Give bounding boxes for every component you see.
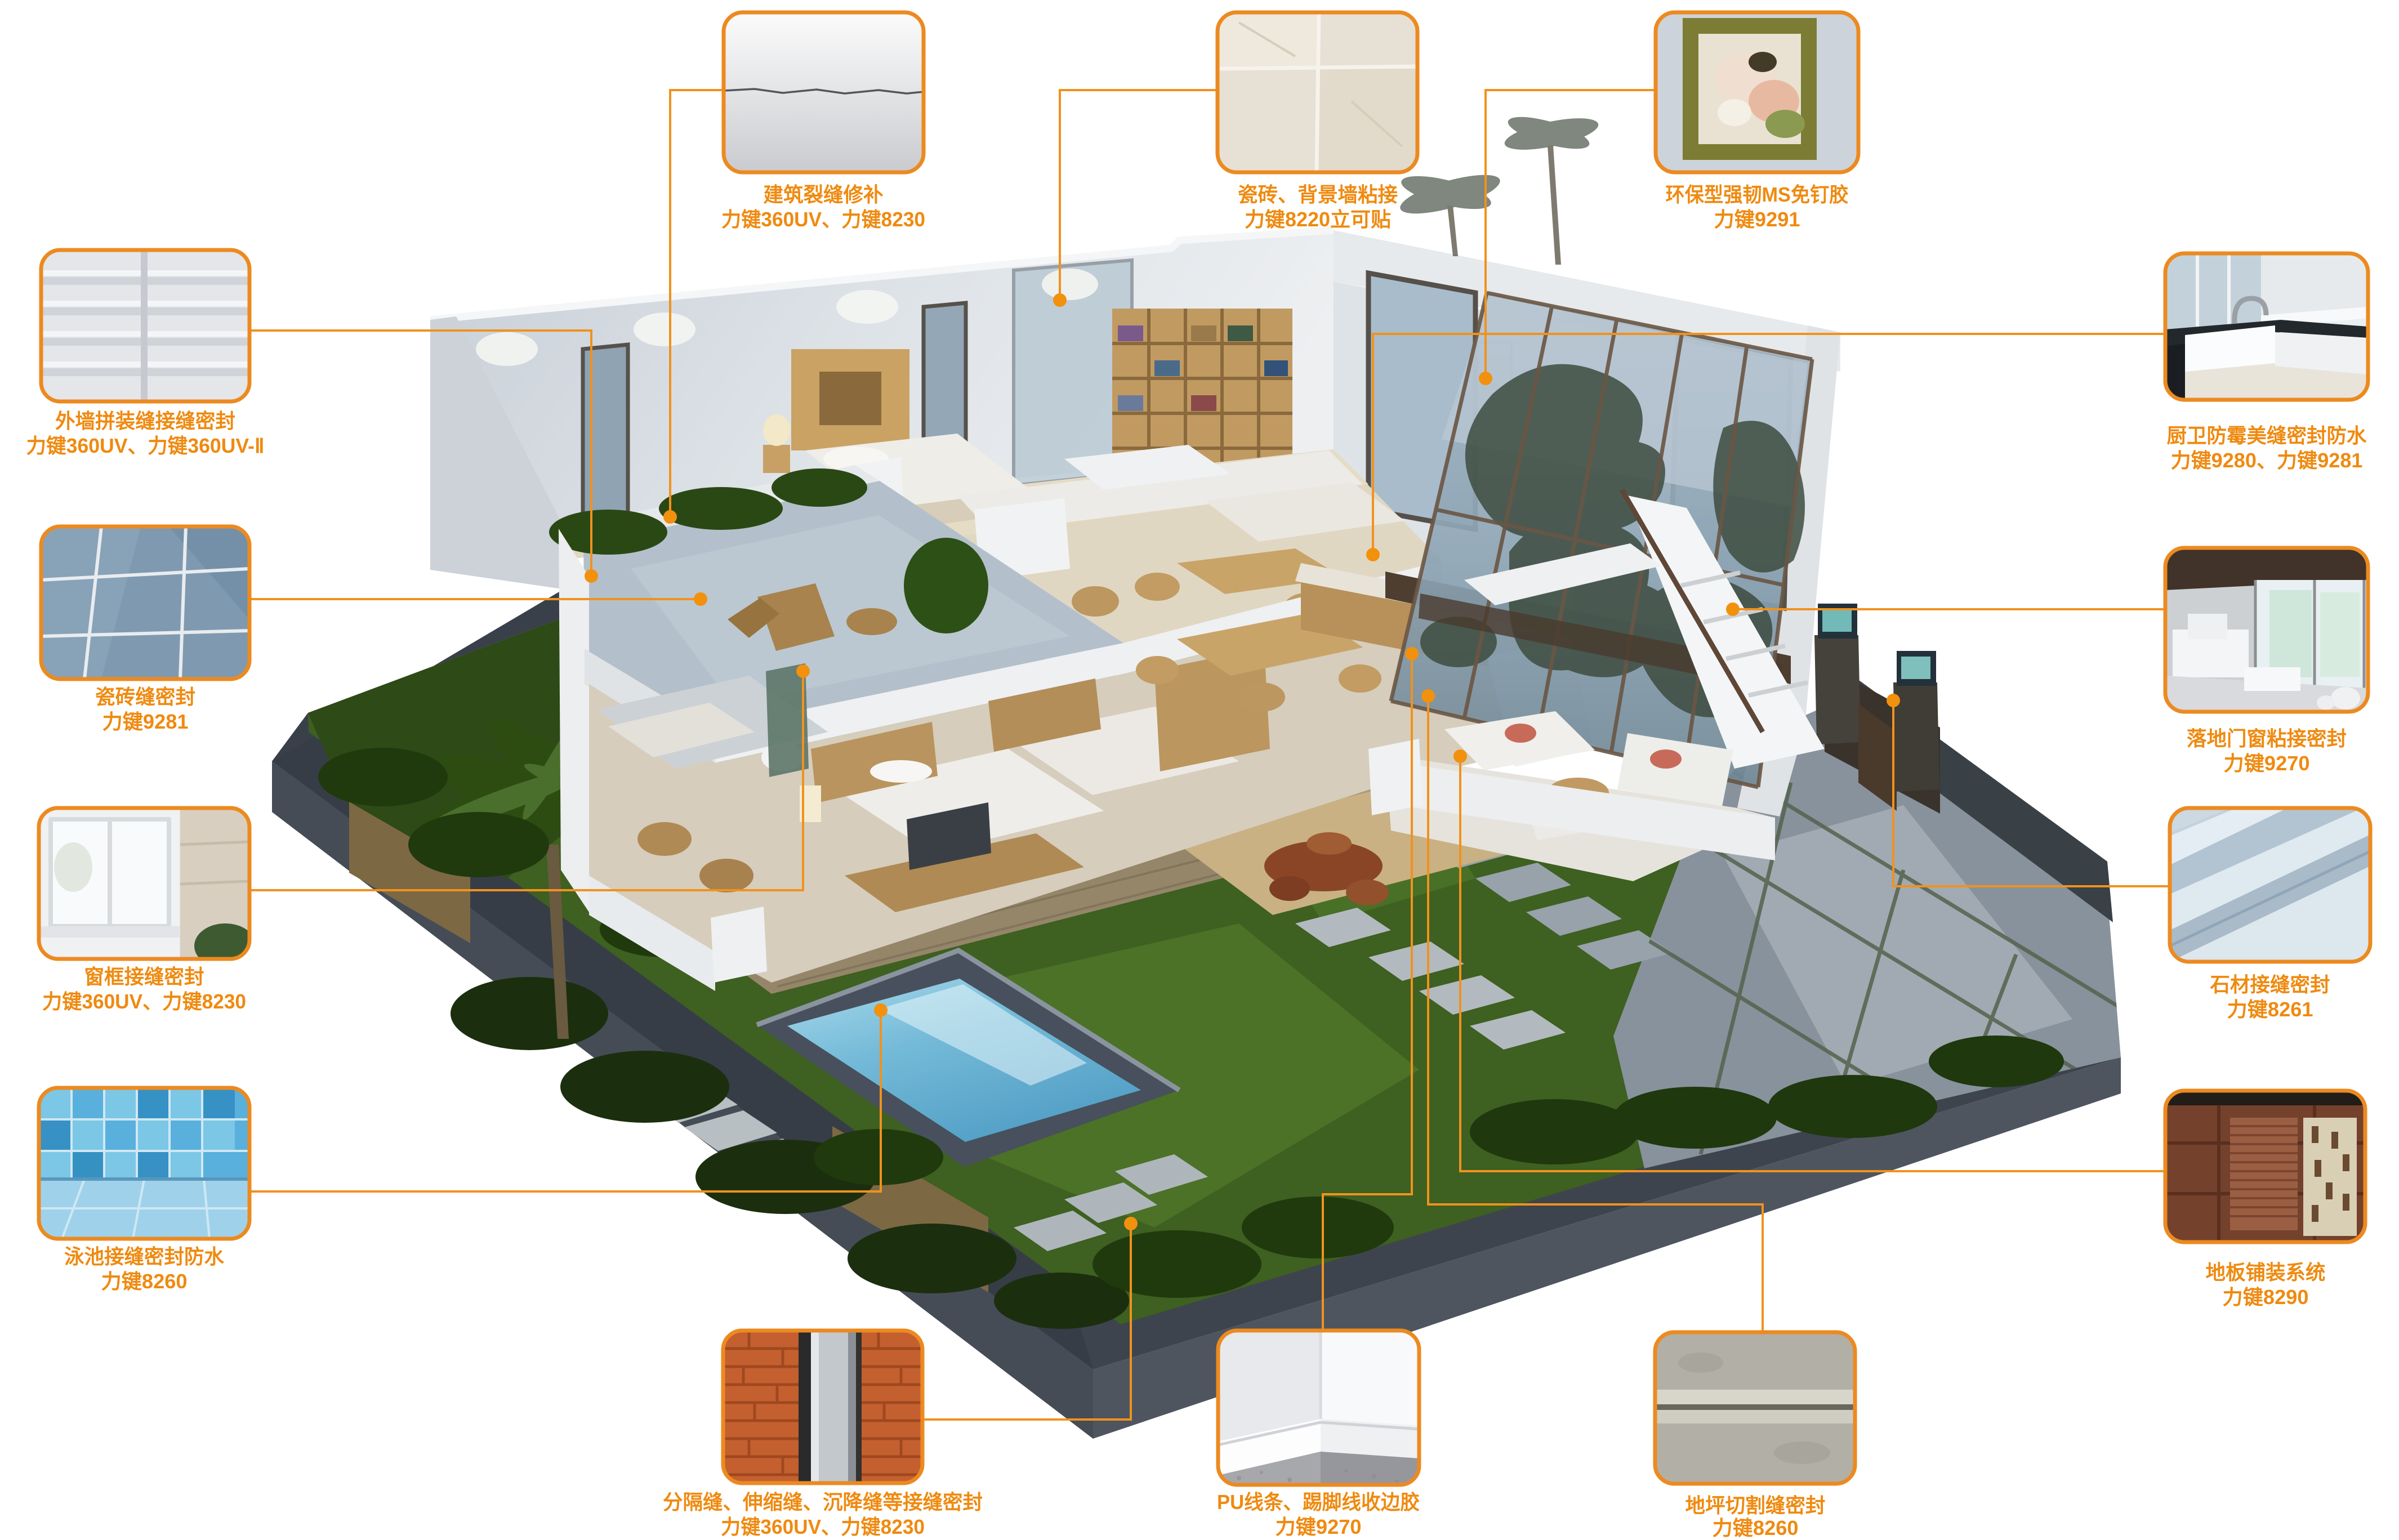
svg-text:力键360UV、力键8230: 力键360UV、力键8230 <box>721 208 925 231</box>
svg-text:分隔缝、伸缩缝、沉降缝等接缝密封: 分隔缝、伸缩缝、沉降缝等接缝密封 <box>663 1490 983 1514</box>
svg-text:地坪切割缝密封: 地坪切割缝密封 <box>1685 1494 1826 1517</box>
svg-text:力键9291: 力键9291 <box>1714 208 1800 231</box>
svg-text:力键8290: 力键8290 <box>2223 1285 2309 1309</box>
svg-text:落地门窗粘接密封: 落地门窗粘接密封 <box>2187 727 2347 750</box>
svg-text:力键8260: 力键8260 <box>101 1270 188 1293</box>
svg-text:地板铺装系统: 地板铺装系统 <box>2206 1261 2326 1284</box>
svg-text:厨卫防霉美缝密封防水: 厨卫防霉美缝密封防水 <box>2167 424 2367 447</box>
svg-text:力键360UV、力键8230: 力键360UV、力键8230 <box>42 990 246 1013</box>
svg-text:泳池接缝密封防水: 泳池接缝密封防水 <box>64 1245 225 1268</box>
svg-text:力键8261: 力键8261 <box>2227 998 2313 1021</box>
svg-text:力键360UV、力键8230: 力键360UV、力键8230 <box>721 1515 925 1538</box>
svg-text:瓷砖缝密封: 瓷砖缝密封 <box>95 685 195 708</box>
svg-text:环保型强韧MS免钉胶: 环保型强韧MS免钉胶 <box>1666 183 1849 206</box>
svg-text:力键9270: 力键9270 <box>2224 752 2310 775</box>
svg-text:外墙拼装缝接缝密封: 外墙拼装缝接缝密封 <box>55 409 235 432</box>
svg-text:力键8260: 力键8260 <box>1713 1516 1799 1539</box>
svg-text:窗框接缝密封: 窗框接缝密封 <box>84 965 204 988</box>
svg-text:建筑裂缝修补: 建筑裂缝修补 <box>764 183 884 206</box>
svg-text:力键9280、力键9281: 力键9280、力键9281 <box>2171 449 2363 472</box>
svg-text:力键9281: 力键9281 <box>102 710 189 733</box>
svg-text:瓷砖、背景墙粘接: 瓷砖、背景墙粘接 <box>1238 183 1398 206</box>
svg-text:石材接缝密封: 石材接缝密封 <box>2210 973 2330 996</box>
svg-text:力键9270: 力键9270 <box>1276 1515 1362 1538</box>
svg-text:PU线条、踢脚线收边胶: PU线条、踢脚线收边胶 <box>1217 1490 1420 1514</box>
svg-text:力键360UV、力键360UV-Ⅱ: 力键360UV、力键360UV-Ⅱ <box>26 434 265 457</box>
svg-text:力键8220立可贴: 力键8220立可贴 <box>1245 208 1391 231</box>
